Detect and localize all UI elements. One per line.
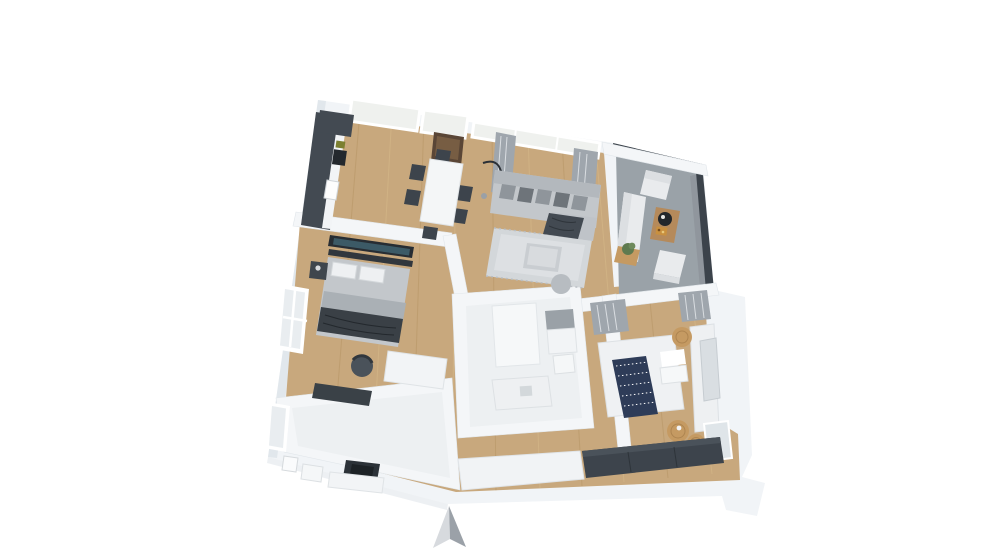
floor-plan-render [0,0,1000,556]
coffee-table-top [527,246,558,268]
bathroom1-mirror [282,456,298,472]
kitchen-cooktop [332,149,347,166]
bathroom1-window-glass [269,406,286,448]
bathroom1-toilet [301,464,323,482]
bedroom1-bed [316,257,410,347]
bathroom-2 [452,285,594,438]
north-arrow-right-face [449,506,466,547]
ottoman [551,274,571,294]
kitchen-green-board [335,140,345,148]
bedroom2-curtain-left [590,299,629,335]
bathroom2-shower-tray [547,328,577,354]
north-arrow-left-face [433,506,450,548]
bathroom2-toilet [553,354,575,374]
bedroom2-wall-mirror [700,338,720,401]
north-arrow [433,506,466,548]
bedroom2-bed [598,335,688,418]
floor-plan-canvas [0,0,1000,556]
bathroom2-door-leaf [492,303,540,367]
bedroom1-lamp [315,265,320,270]
bathroom2-basin [520,386,533,397]
kitchen-sink [324,180,339,200]
